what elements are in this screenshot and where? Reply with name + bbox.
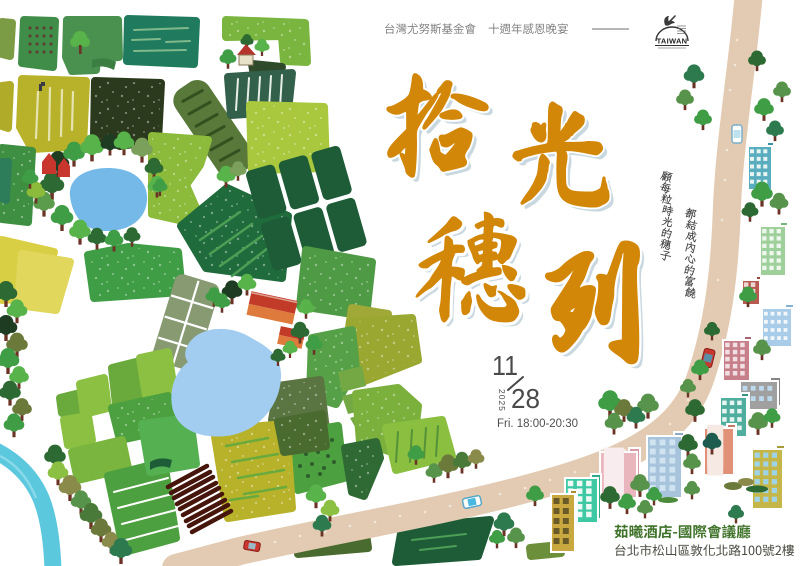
svg-text:28: 28 [511,383,540,414]
svg-text:2025: 2025 [497,389,507,412]
svg-text:Fri. 18:00-20:30: Fri. 18:00-20:30 [497,416,578,430]
svg-text:TAIWAN: TAIWAN [657,37,688,46]
svg-text:11: 11 [492,350,518,381]
